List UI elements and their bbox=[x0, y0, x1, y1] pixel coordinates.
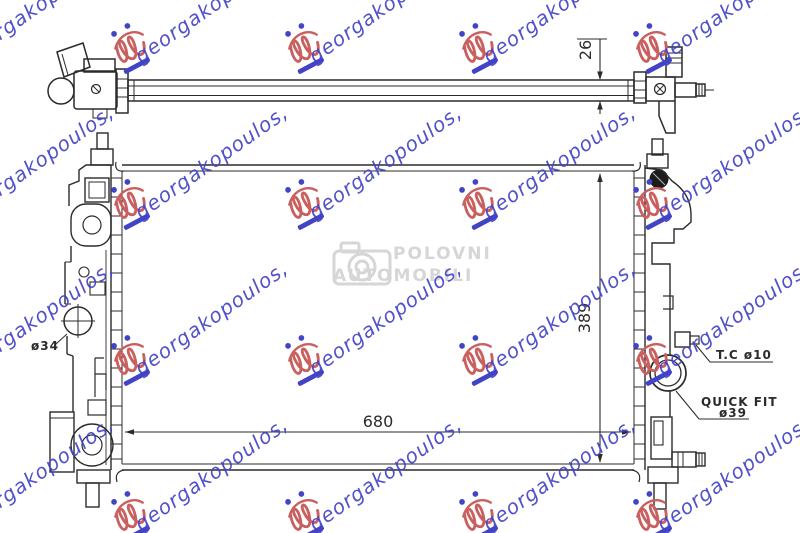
left-tank bbox=[50, 133, 122, 507]
dia-34-label: ø34 bbox=[31, 339, 59, 353]
label-quick-fit: QUICK FIT ø39 bbox=[676, 391, 778, 420]
right-tank bbox=[634, 139, 705, 509]
dimension-389: 389 bbox=[575, 173, 603, 463]
label-tc-port: T.C ø10 bbox=[696, 345, 773, 362]
left-crimp-tabs bbox=[111, 178, 122, 459]
radiator-technical-drawing: 26 389 680 ø34 T.C ø10 QUICK FIT ø39 bbox=[0, 0, 800, 533]
label-diameter-34: ø34 bbox=[31, 334, 67, 353]
radiator-drawing-page: POLOVNI AUTOMOBILI bbox=[0, 0, 800, 533]
right-crimp-tabs bbox=[634, 178, 645, 459]
port-diameter-34 bbox=[61, 304, 95, 338]
pipe-left-fitting bbox=[48, 43, 128, 118]
dimension-26: 26 bbox=[576, 39, 607, 114]
radiator-core bbox=[116, 162, 641, 482]
dim-680-label: 680 bbox=[363, 412, 394, 431]
bottom-outlet bbox=[648, 417, 705, 509]
tc-port-label: T.C ø10 bbox=[716, 348, 772, 362]
quick-fit-port bbox=[650, 355, 686, 391]
quick-fit-diameter-label: ø39 bbox=[719, 406, 747, 420]
cooler-pipe bbox=[48, 43, 714, 133]
dim-389-label: 389 bbox=[575, 303, 594, 334]
pipe-right-fitting bbox=[634, 47, 714, 133]
dimension-680: 680 bbox=[125, 412, 631, 435]
tc-port bbox=[675, 332, 699, 347]
dim-26-label: 26 bbox=[576, 40, 595, 60]
